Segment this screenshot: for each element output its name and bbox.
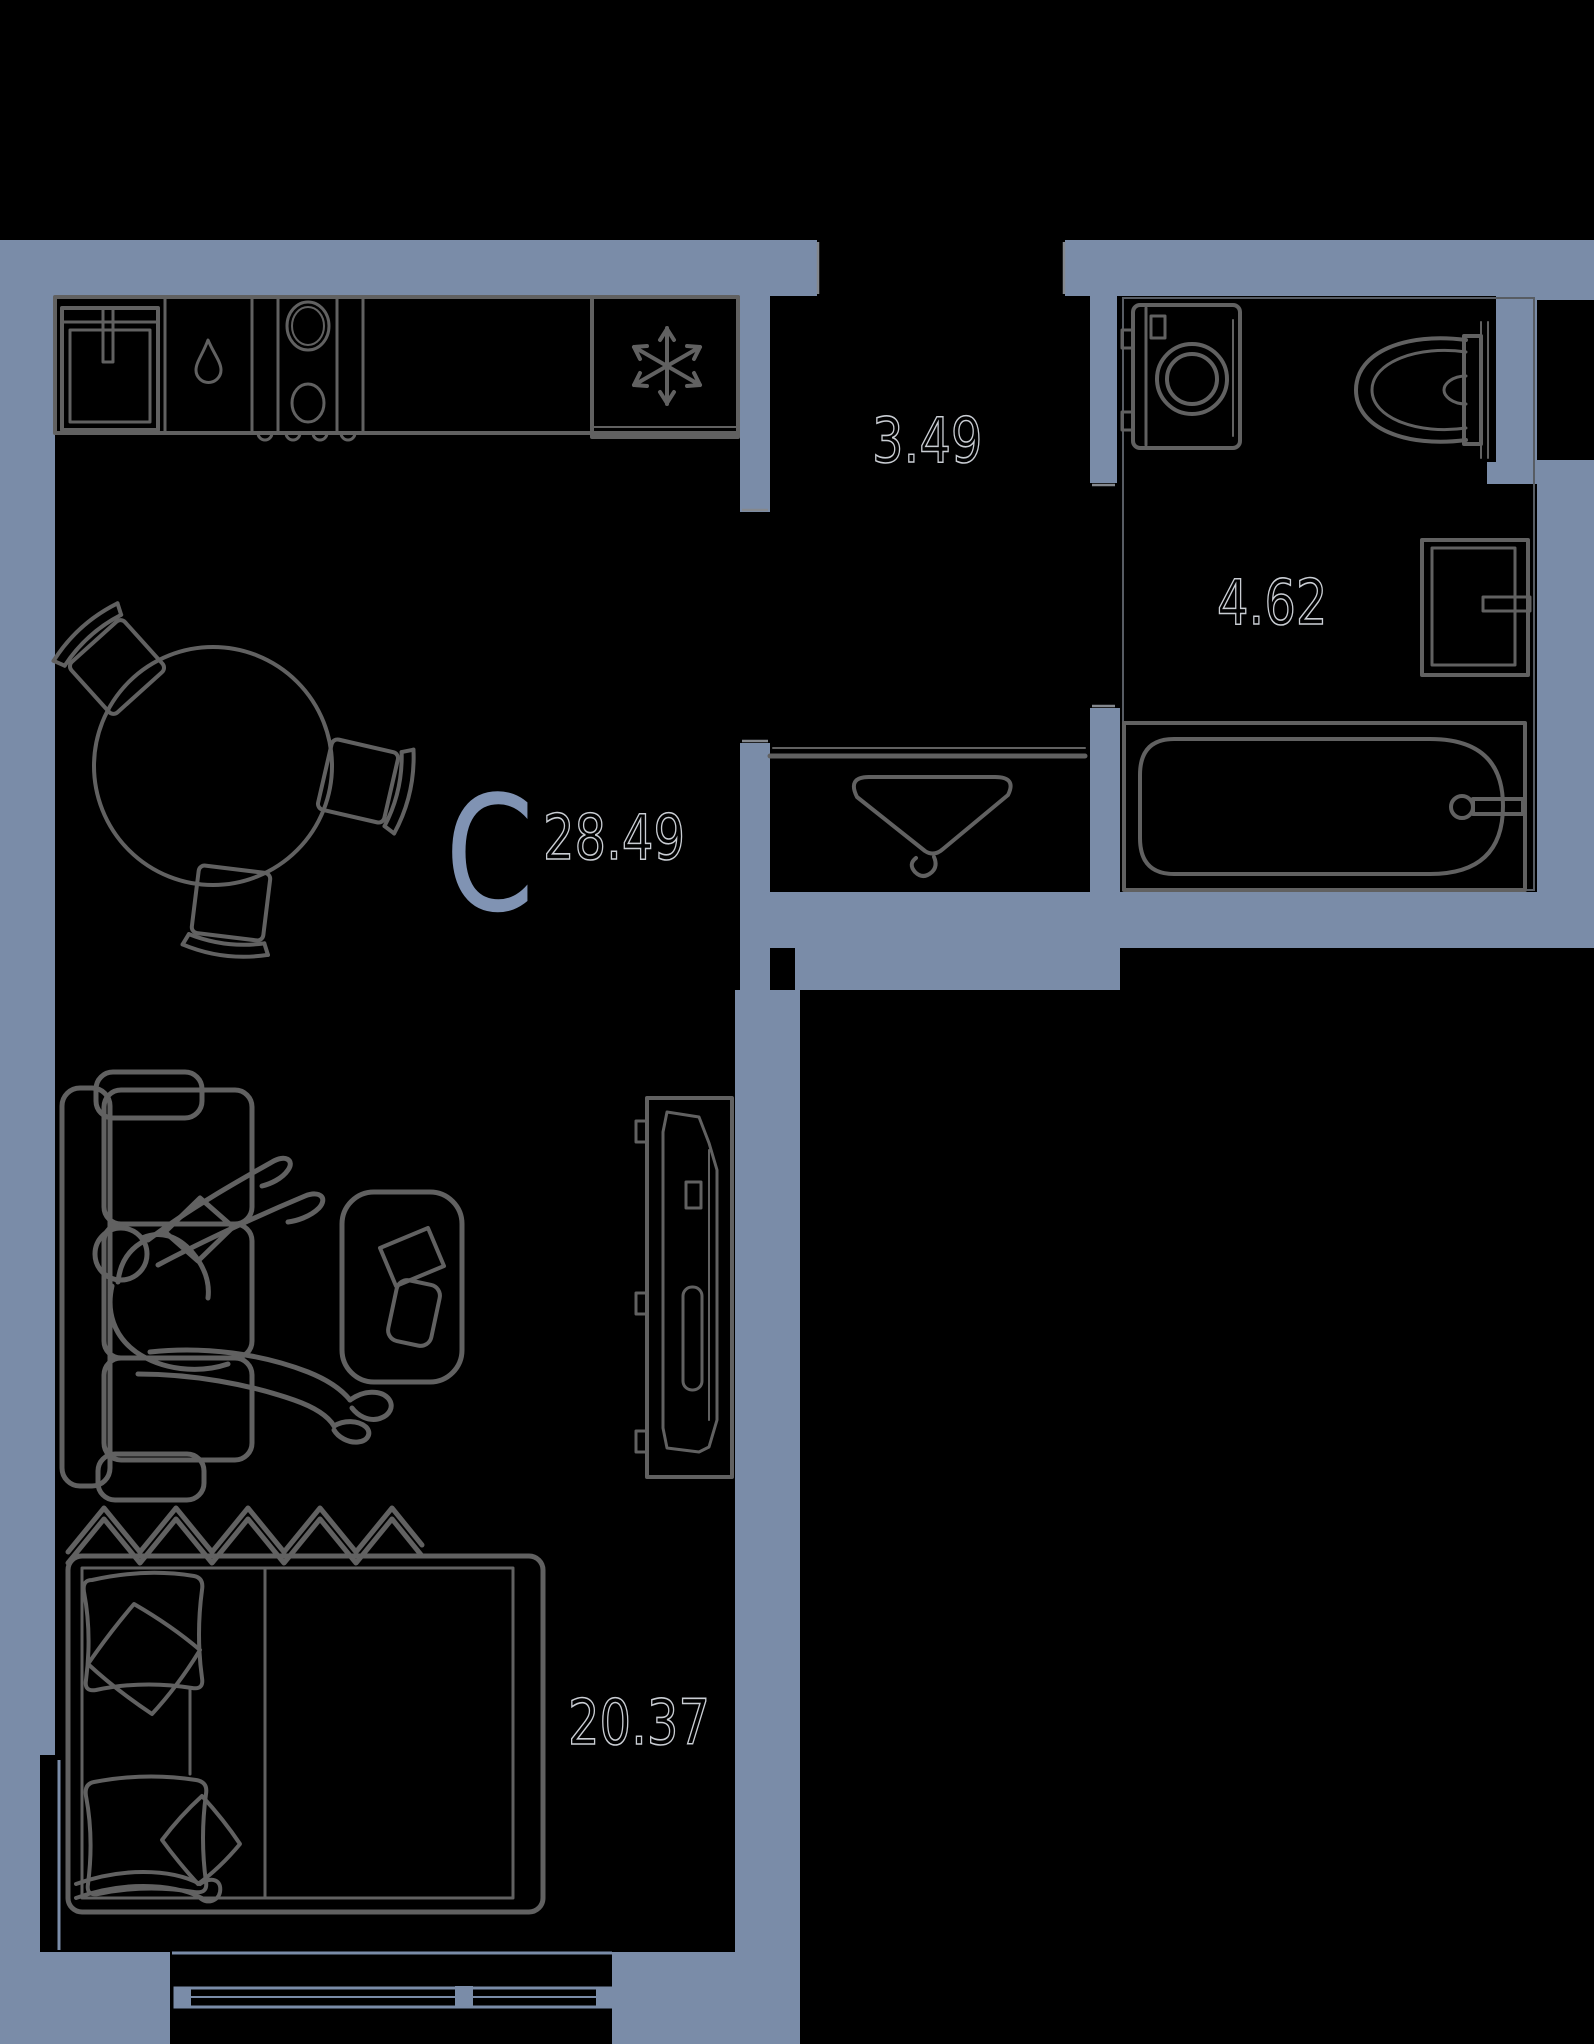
sink-faucet bbox=[1483, 597, 1530, 611]
floor-plan-drawing bbox=[0, 0, 1594, 2044]
pillow-cushion bbox=[88, 1604, 200, 1714]
walls bbox=[0, 240, 1594, 2044]
bed-icon bbox=[68, 1508, 543, 1912]
bathroom-sink bbox=[1422, 540, 1530, 675]
remote-icon bbox=[386, 1278, 442, 1348]
washing-machine bbox=[1122, 305, 1240, 448]
window-mullion bbox=[455, 1986, 473, 2007]
unit-total-area: 28.49 bbox=[543, 807, 685, 869]
book-icon bbox=[380, 1228, 444, 1286]
room-area-living: 20.37 bbox=[568, 1692, 710, 1754]
mid-horizontal-wall bbox=[770, 892, 1594, 948]
sink-basin bbox=[1432, 548, 1515, 665]
toilet-icon bbox=[1356, 322, 1488, 458]
bathtub-icon bbox=[1124, 723, 1525, 890]
sink-outer bbox=[62, 308, 158, 430]
washer-body bbox=[1133, 305, 1240, 448]
window-cap bbox=[596, 1988, 612, 2007]
tv-mount bbox=[683, 1287, 702, 1390]
duct-pillar bbox=[1496, 296, 1537, 462]
tv-mount bbox=[686, 1182, 701, 1208]
kitchen-sink bbox=[62, 308, 158, 430]
tv-unit bbox=[636, 1098, 732, 1477]
bathroom-door-wall-upper bbox=[1090, 296, 1117, 483]
hanger-icon bbox=[854, 777, 1011, 876]
top-wall-left bbox=[0, 240, 817, 296]
mid-horizontal-wall-thick bbox=[795, 948, 1120, 990]
door-openings bbox=[742, 242, 1115, 741]
pillow-cushion bbox=[162, 1796, 240, 1884]
stove-burners bbox=[258, 302, 355, 440]
bottom-left-block bbox=[0, 1952, 170, 2044]
faucet-icon bbox=[103, 308, 113, 362]
room-area-bathroom: 4.62 bbox=[1217, 572, 1327, 634]
blanket-fold bbox=[76, 1872, 200, 1884]
bathtub-faucet bbox=[1473, 799, 1523, 814]
ottoman-outline bbox=[342, 1192, 462, 1382]
left-wall bbox=[0, 240, 55, 1755]
ottoman-table bbox=[342, 1192, 462, 1382]
bathroom-door-wall-lower bbox=[1090, 708, 1120, 892]
living-partition-upper bbox=[740, 743, 770, 990]
toilet-bowl-inner bbox=[1372, 350, 1466, 429]
wardrobe bbox=[770, 748, 1085, 876]
chair bbox=[182, 864, 278, 961]
sofa-cushion bbox=[104, 1090, 252, 1224]
bed-mattress bbox=[82, 1568, 513, 1898]
window-cap bbox=[175, 1988, 191, 2007]
unit-type-letter: С bbox=[445, 775, 534, 935]
bathtub-outer bbox=[1124, 723, 1525, 890]
burner-icon bbox=[292, 384, 324, 422]
floor-plan: С 28.49 3.49 4.62 20.37 bbox=[0, 0, 1594, 2044]
burner-icon bbox=[287, 302, 329, 350]
kitchen-counter bbox=[55, 297, 738, 440]
snowflake-icon bbox=[634, 328, 700, 404]
water-drop-icon bbox=[196, 340, 221, 382]
sink-basin bbox=[70, 330, 150, 422]
room-area-hallway: 3.49 bbox=[872, 410, 982, 472]
washer-door-inner bbox=[1167, 354, 1217, 404]
dining-table-icon bbox=[94, 647, 332, 885]
top-wall-right bbox=[1065, 240, 1594, 296]
bathtub-drain bbox=[1451, 796, 1473, 818]
duct-niche bbox=[1537, 300, 1594, 460]
bottom-right-block bbox=[612, 1952, 800, 2044]
kitchen-partition-wall bbox=[740, 296, 770, 512]
washer-drawer bbox=[1151, 316, 1165, 338]
bathtub-inner bbox=[1140, 739, 1503, 874]
living-partition-lower bbox=[735, 990, 800, 2044]
duct-niche-bottom bbox=[1487, 462, 1594, 484]
sink-cabinet bbox=[1422, 540, 1528, 675]
refrigerator bbox=[592, 297, 738, 437]
sofa-icon bbox=[62, 1072, 252, 1500]
person-icon bbox=[95, 1158, 391, 1442]
dining-area bbox=[50, 599, 420, 961]
burner-inner bbox=[292, 307, 324, 345]
